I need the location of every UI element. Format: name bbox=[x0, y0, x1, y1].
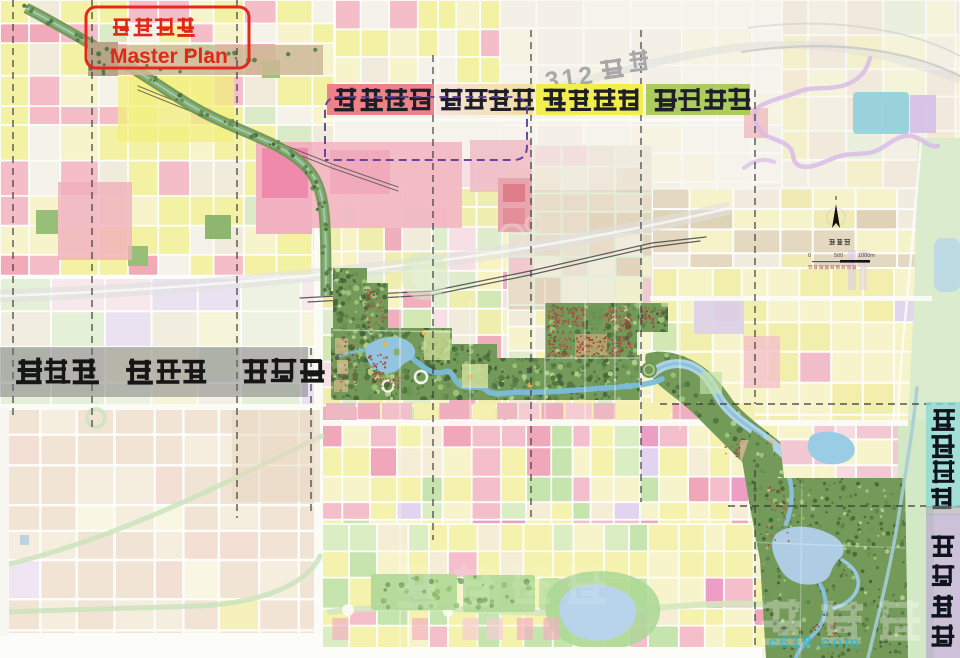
svg-text:0: 0 bbox=[808, 253, 811, 259]
svg-text:1000m: 1000m bbox=[858, 253, 875, 259]
svg-text:500: 500 bbox=[834, 253, 843, 259]
svg-text:c618.com: c618.com bbox=[768, 633, 862, 652]
svg-text:Master Plan: Master Plan bbox=[110, 45, 228, 68]
